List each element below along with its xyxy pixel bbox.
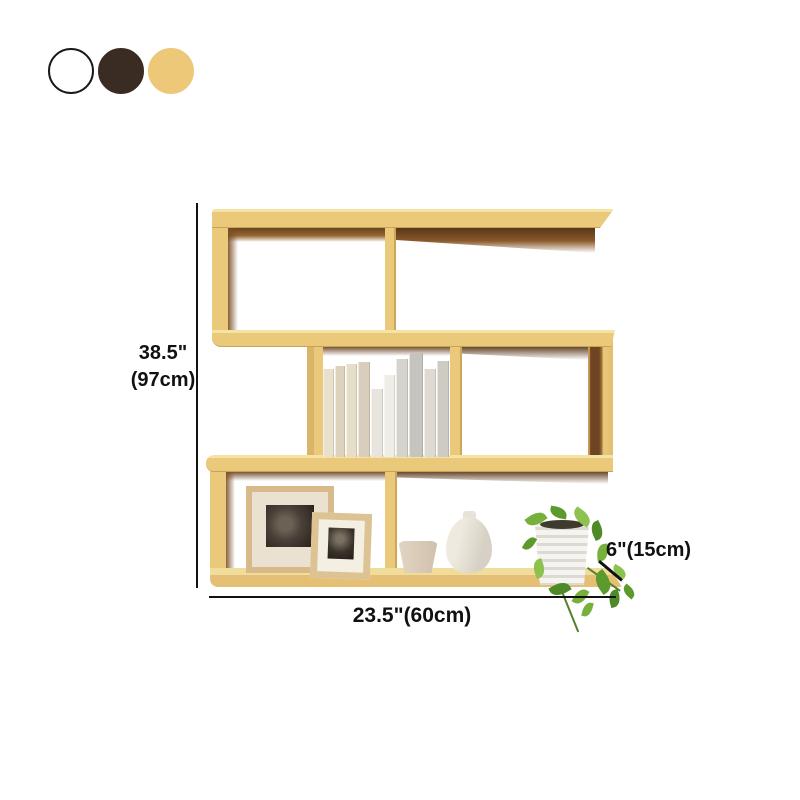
shelf-third-board	[206, 455, 613, 472]
book	[384, 375, 395, 457]
shelf-right-panel	[588, 332, 613, 467]
photo-small	[328, 528, 355, 560]
width-label: 23.5"(60cm)	[312, 604, 512, 628]
plant-leaf	[621, 584, 638, 600]
shelf-divider-middle-left	[307, 345, 323, 457]
height-label: 38.5" (97cm)	[121, 340, 205, 394]
shelf-inner-shadow	[462, 346, 588, 360]
shelf-left-panel-bottom	[210, 471, 226, 571]
plant-leaf	[607, 589, 622, 608]
plant-leaf	[581, 601, 594, 618]
shelf-inner-shadow	[396, 226, 595, 253]
shelf-inner-shadow	[227, 228, 238, 330]
plant-leaf	[522, 535, 537, 552]
depth-label: 6"(15cm)	[606, 539, 691, 562]
height-inches: 38.5"	[121, 340, 205, 367]
color-swatch-dark-brown[interactable]	[98, 48, 144, 94]
book	[323, 369, 334, 457]
potted-plant	[520, 505, 650, 620]
height-cm: (97cm)	[121, 367, 205, 394]
color-swatch-white[interactable]	[48, 48, 94, 94]
shelf-top-board	[212, 209, 614, 228]
plant-leaf	[549, 506, 568, 520]
photo-large	[266, 505, 314, 547]
shelf-second-board	[212, 330, 615, 347]
books-row	[323, 347, 451, 457]
width-dimension-line	[209, 596, 616, 598]
book	[424, 369, 436, 457]
color-swatch-group	[48, 48, 194, 94]
plant-leaf	[588, 520, 606, 541]
shelf-inner-shadow	[226, 471, 385, 481]
shelf-inner-shadow	[225, 472, 235, 568]
book	[335, 366, 345, 457]
color-swatch-light-wood[interactable]	[148, 48, 194, 94]
product-image: 38.5" (97cm) 23.5"(60cm) 6"(15cm)	[0, 0, 800, 800]
shelf-divider-top	[385, 226, 396, 332]
book	[437, 361, 449, 457]
book	[346, 364, 357, 457]
shelf-divider-middle-right	[450, 345, 462, 457]
book	[358, 362, 370, 457]
book	[409, 353, 423, 457]
height-dimension-line	[196, 203, 198, 588]
shelf-divider-bottom	[385, 471, 397, 571]
photo-frame-small	[310, 512, 372, 580]
vase-bottle	[446, 517, 492, 573]
shelf-left-panel-top	[212, 209, 228, 339]
shelf-inner-shadow	[228, 226, 385, 242]
book	[396, 359, 408, 457]
shelf-inner-shadow	[397, 471, 608, 484]
book	[371, 389, 383, 457]
